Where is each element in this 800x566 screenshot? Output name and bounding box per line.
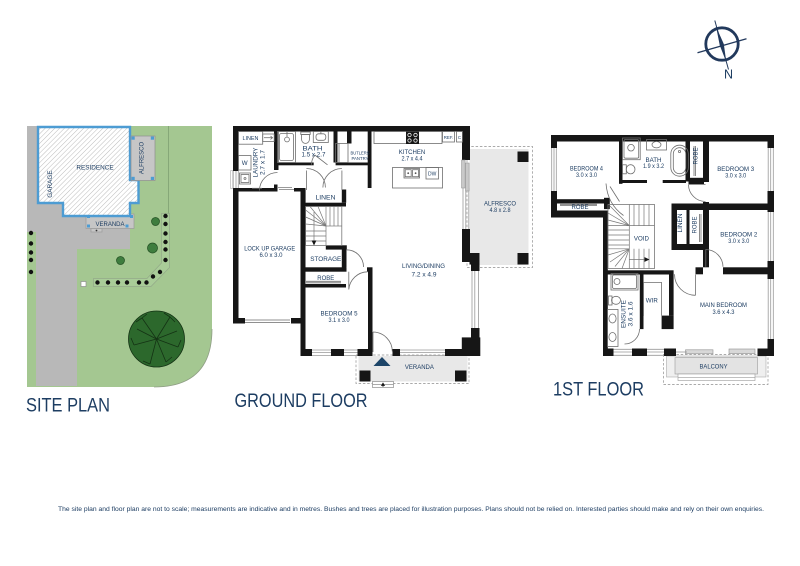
svg-text:LINEN: LINEN: [316, 194, 336, 201]
svg-text:WIR: WIR: [646, 298, 658, 305]
svg-text:LINEN: LINEN: [678, 214, 684, 233]
svg-text:3.6 x 1.6: 3.6 x 1.6: [629, 301, 635, 327]
svg-text:1.5 x 2.7: 1.5 x 2.7: [302, 152, 326, 159]
svg-text:W: W: [242, 160, 248, 167]
svg-text:ROBE: ROBE: [572, 204, 589, 211]
svg-text:BUTLERS: BUTLERS: [351, 151, 370, 157]
svg-text:ALFRESCO: ALFRESCO: [140, 141, 146, 174]
svg-text:LIVING/DINING: LIVING/DINING: [402, 263, 445, 270]
svg-text:BALCONY: BALCONY: [700, 363, 728, 370]
svg-text:7.2 x 4.9: 7.2 x 4.9: [412, 271, 437, 278]
svg-text:PANTRY: PANTRY: [352, 156, 370, 162]
svg-text:STORAGE: STORAGE: [310, 256, 341, 263]
svg-text:3.6 x 4.3: 3.6 x 4.3: [713, 309, 735, 316]
svg-text:C: C: [458, 135, 461, 140]
svg-text:ROBE: ROBE: [317, 275, 334, 282]
svg-text:ROBE: ROBE: [692, 217, 698, 234]
svg-text:ROBE: ROBE: [694, 148, 700, 165]
svg-text:2.7 x 1.7: 2.7 x 1.7: [261, 149, 267, 175]
svg-text:DW: DW: [428, 172, 437, 178]
svg-text:GARAGE: GARAGE: [47, 170, 54, 197]
svg-text:The site plan and floor plan a: The site plan and floor plan are not to …: [58, 506, 764, 513]
svg-text:2.7 x 4.4: 2.7 x 4.4: [402, 156, 423, 163]
svg-text:1.9 x 3.2: 1.9 x 3.2: [643, 163, 664, 170]
svg-text:6.0 x 3.0: 6.0 x 3.0: [260, 252, 283, 259]
svg-text:1ST FLOOR: 1ST FLOOR: [553, 380, 644, 401]
svg-text:N: N: [724, 68, 733, 82]
svg-text:VERANDA: VERANDA: [95, 222, 124, 228]
svg-text:3.0 x 3.0: 3.0 x 3.0: [725, 173, 746, 180]
svg-text:RESIDENCE: RESIDENCE: [76, 165, 113, 172]
svg-text:LAUNDRY: LAUNDRY: [254, 148, 260, 178]
svg-text:3.1 x 3.0: 3.1 x 3.0: [329, 317, 350, 324]
svg-text:GROUND FLOOR: GROUND FLOOR: [235, 390, 368, 412]
svg-text:SITE PLAN: SITE PLAN: [26, 396, 110, 417]
svg-text:VOID: VOID: [634, 236, 649, 243]
svg-text:4.8 x 2.8: 4.8 x 2.8: [490, 207, 511, 214]
svg-text:3.0 x 3.0: 3.0 x 3.0: [576, 172, 597, 179]
svg-text:ENSUITE: ENSUITE: [622, 300, 628, 328]
svg-text:REF.: REF.: [444, 135, 454, 140]
svg-text:VERANDA: VERANDA: [405, 364, 434, 371]
svg-text:3.0 x 3.0: 3.0 x 3.0: [728, 238, 749, 245]
svg-text:LINEN: LINEN: [243, 136, 259, 142]
